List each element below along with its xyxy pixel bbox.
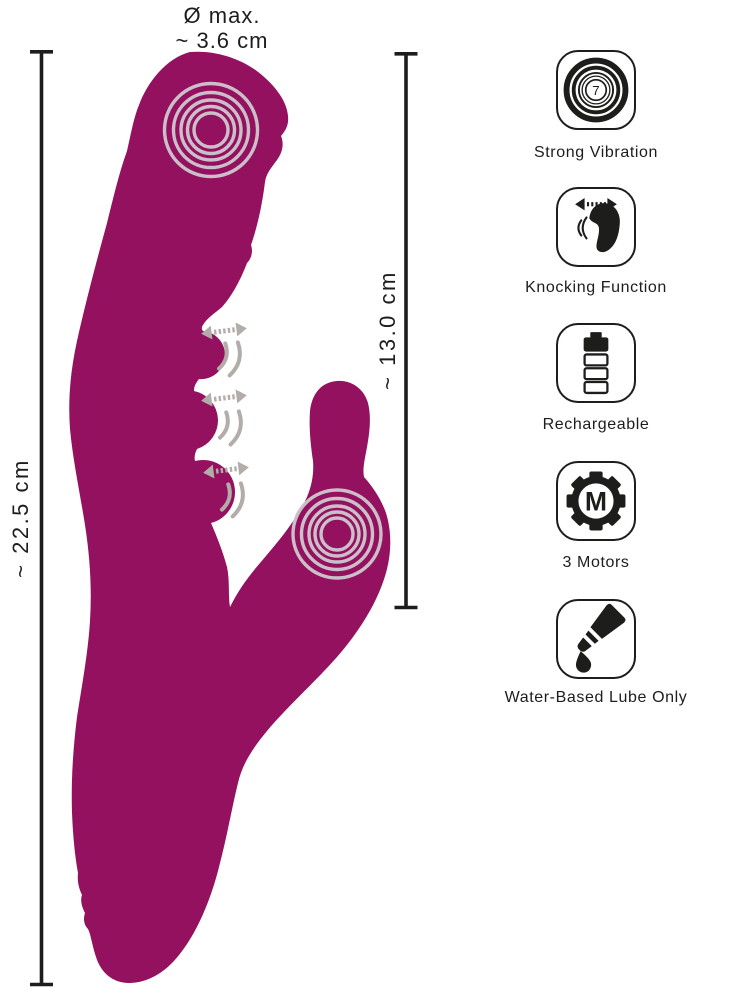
diameter-label-line2: ~ 3.6 cm xyxy=(142,29,302,54)
vibration-level-text: 7 xyxy=(592,83,599,98)
feature-icon-box: 7 xyxy=(556,50,636,130)
total-length-label: ~ 22.5 cm xyxy=(8,458,34,578)
strong-vibration-icon: 7 xyxy=(558,52,634,128)
product-illustration xyxy=(0,0,450,1000)
feature-icon-box xyxy=(556,323,636,403)
diameter-label-line1: Ø max. xyxy=(142,4,302,29)
feature-label: Knocking Function xyxy=(446,279,746,297)
motors-icon: M xyxy=(558,463,634,539)
feature-icon-box: M xyxy=(556,461,636,541)
motor-monogram-text: M xyxy=(585,487,607,517)
feature-label: Rechargeable xyxy=(446,416,746,434)
feature-label: 3 Motors xyxy=(446,554,746,572)
knocking-waves-icon xyxy=(219,409,244,446)
feature-label: Strong Vibration xyxy=(446,144,746,162)
feature-icon-box xyxy=(556,599,636,679)
feature-label: Water-Based Lube Only xyxy=(446,689,746,707)
diameter-label: Ø max. ~ 3.6 cm xyxy=(142,4,302,53)
feature-icon-box xyxy=(556,187,636,267)
knocking-function-icon xyxy=(558,189,634,265)
insertable-length-label: ~ 13.0 cm xyxy=(375,270,401,390)
product-infographic: Ø max. ~ 3.6 cm ~ 22.5 cm ~ 13.0 cm 7 St… xyxy=(0,0,746,1000)
water-based-lube-icon xyxy=(558,601,634,677)
rechargeable-icon xyxy=(558,325,634,401)
